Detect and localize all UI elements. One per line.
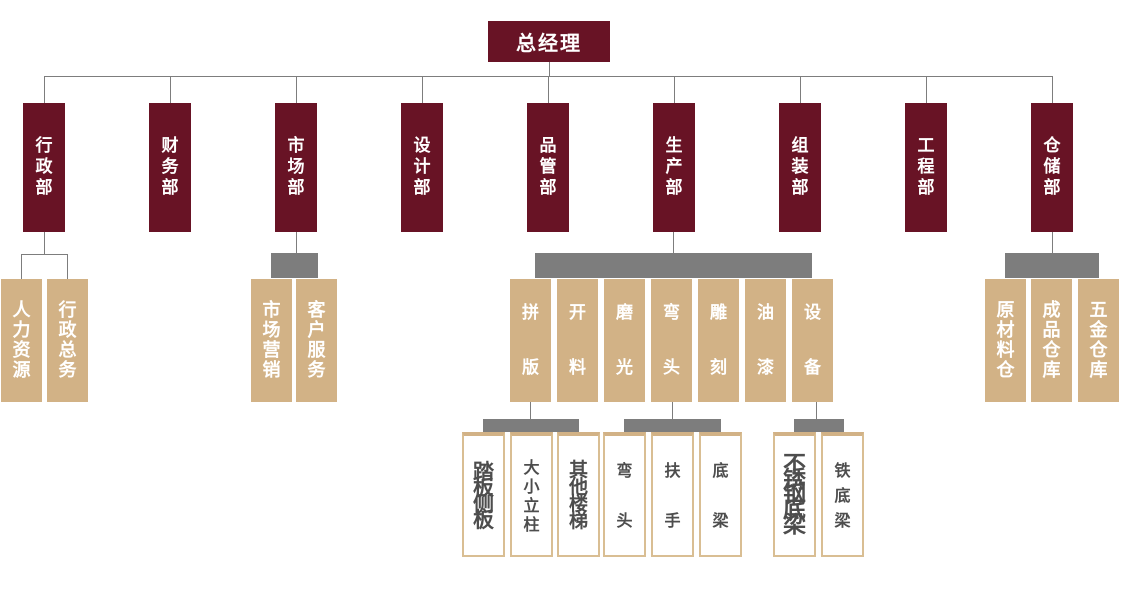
- node-sub-equipment: 设备: [792, 279, 833, 402]
- sub-label: 成品仓库: [1043, 301, 1061, 381]
- leaf-label: 不锈钢底梁: [783, 458, 806, 533]
- dept-label: 品管部: [540, 136, 557, 199]
- sub-label: 拼版: [522, 286, 539, 396]
- dept-label: 仓储部: [1044, 136, 1061, 199]
- leaf-label: 弯头: [616, 446, 632, 546]
- node-leaf-bottom-beam: 底梁: [699, 432, 742, 557]
- sub-label: 设备: [804, 286, 821, 396]
- leaf-label: 铁底梁: [834, 458, 850, 533]
- connector-line: [926, 76, 927, 103]
- node-dept-finance: 财务部: [149, 103, 191, 232]
- node-leaf-iron-bottom-beam: 铁底梁: [821, 432, 864, 557]
- leaf-label: 扶手: [664, 446, 680, 546]
- connector-line: [1052, 76, 1053, 103]
- connector-line: [1052, 232, 1053, 253]
- connector-bar: [1005, 253, 1099, 278]
- node-leaf-posts: 大小立柱: [510, 432, 553, 557]
- node-sub-general-affairs: 行政总务: [47, 279, 88, 402]
- connector-bar: [271, 253, 318, 278]
- connector-bar: [624, 419, 721, 432]
- node-leaf-handrail: 扶手: [651, 432, 694, 557]
- node-dept-engineering: 工程部: [905, 103, 947, 232]
- sub-label: 雕刻: [710, 286, 727, 396]
- connector-line: [549, 62, 550, 76]
- node-sub-human-resources: 人力资源: [1, 279, 42, 402]
- connector-line: [816, 402, 817, 419]
- node-dept-administration: 行政部: [23, 103, 65, 232]
- dept-label: 生产部: [666, 136, 683, 199]
- connector-line: [672, 402, 673, 419]
- node-sub-polishing: 磨光: [604, 279, 645, 402]
- sub-label: 油漆: [757, 286, 774, 396]
- node-leaf-treads-side-panels: 踏板侧板: [462, 432, 505, 557]
- node-dept-production: 生产部: [653, 103, 695, 232]
- sub-label: 磨光: [616, 286, 633, 396]
- connector-line: [21, 254, 22, 279]
- node-leaf-stainless-bottom-beam: 不锈钢底梁: [773, 432, 816, 557]
- sub-label: 五金仓库: [1090, 301, 1108, 381]
- connector-line: [548, 76, 549, 103]
- node-dept-warehouse: 仓储部: [1031, 103, 1073, 232]
- node-dept-marketing: 市场部: [275, 103, 317, 232]
- node-sub-market-sales: 市场营销: [251, 279, 292, 402]
- dept-label: 设计部: [414, 136, 431, 199]
- connector-line: [44, 232, 45, 255]
- node-sub-customer-service: 客户服务: [296, 279, 337, 402]
- sub-label: 原材料仓: [997, 301, 1015, 381]
- connector-line: [800, 76, 801, 103]
- leaf-label: 其他楼梯: [569, 462, 588, 530]
- node-dept-quality: 品管部: [527, 103, 569, 232]
- org-chart-canvas: 总经理 行政部 财务部 市场部 设计部 品管部 生产部 组装部 工程部 仓储部 …: [0, 0, 1122, 592]
- dept-label: 工程部: [918, 136, 935, 199]
- sub-label: 行政总务: [59, 301, 77, 381]
- connector-line: [674, 76, 675, 103]
- connector-bar: [794, 419, 844, 432]
- connector-line: [67, 254, 68, 279]
- node-wh-raw-materials: 原材料仓: [985, 279, 1026, 402]
- node-sub-bends: 弯头: [651, 279, 692, 402]
- sub-label: 弯头: [663, 286, 680, 396]
- connector-bar: [535, 253, 812, 278]
- node-wh-finished-goods: 成品仓库: [1031, 279, 1072, 402]
- dept-label: 市场部: [288, 136, 305, 199]
- leaf-label: 大小立柱: [523, 458, 539, 534]
- connector-line: [44, 76, 45, 103]
- node-leaf-other-stairs: 其他楼梯: [557, 432, 600, 557]
- node-dept-design: 设计部: [401, 103, 443, 232]
- leaf-label: 底梁: [712, 446, 728, 546]
- connector-line: [21, 254, 68, 255]
- dept-label: 组装部: [792, 136, 809, 199]
- connector-bar: [483, 419, 579, 432]
- sub-label: 市场营销: [263, 301, 281, 381]
- node-dept-assembly: 组装部: [779, 103, 821, 232]
- connector-line: [422, 76, 423, 103]
- node-general-manager: 总经理: [488, 21, 610, 62]
- node-sub-painting: 油漆: [745, 279, 786, 402]
- sub-label: 开料: [569, 286, 586, 396]
- node-sub-carving: 雕刻: [698, 279, 739, 402]
- connector-line: [170, 76, 171, 103]
- node-leaf-bend: 弯头: [603, 432, 646, 557]
- connector-line: [530, 402, 531, 419]
- dept-label: 财务部: [162, 136, 179, 199]
- sub-label: 客户服务: [308, 301, 326, 381]
- node-wh-hardware: 五金仓库: [1078, 279, 1119, 402]
- connector-line: [296, 76, 297, 103]
- node-sub-cutting: 开料: [557, 279, 598, 402]
- node-sub-panel-assembly: 拼版: [510, 279, 551, 402]
- leaf-label: 踏板侧板: [473, 464, 494, 528]
- dept-label: 行政部: [36, 136, 53, 199]
- sub-label: 人力资源: [13, 301, 31, 381]
- connector-line: [673, 232, 674, 253]
- connector-line: [296, 232, 297, 253]
